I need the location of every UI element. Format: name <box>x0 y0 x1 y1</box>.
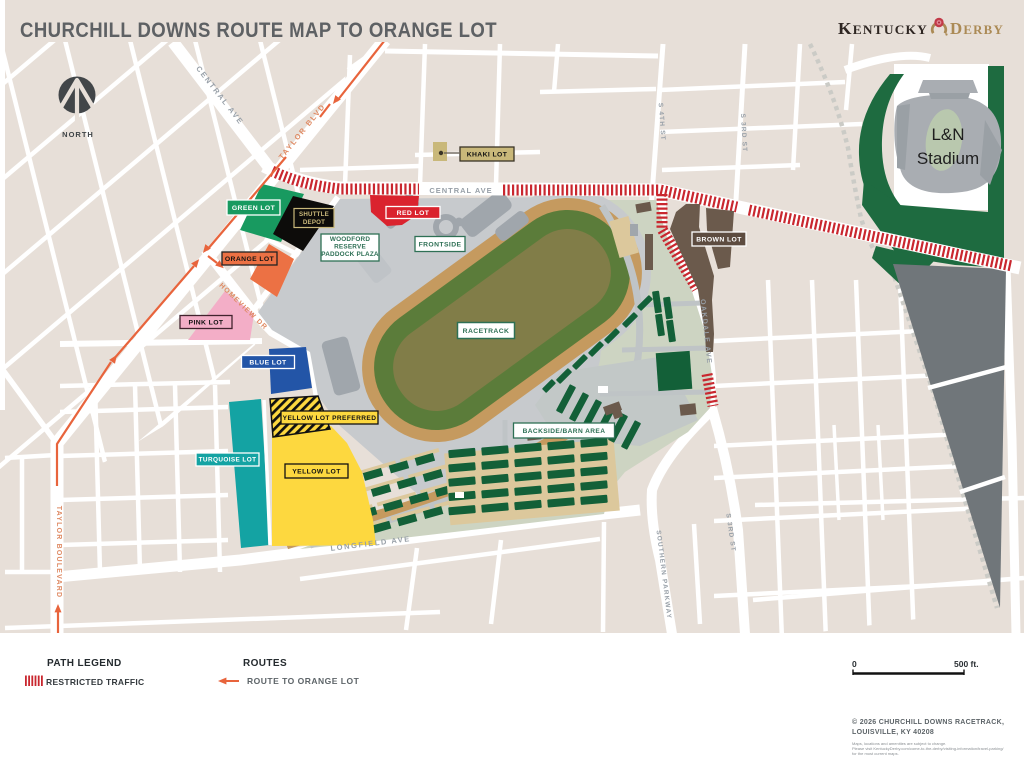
svg-text:KHAKI LOT: KHAKI LOT <box>467 151 508 158</box>
svg-text:L&N: L&N <box>931 125 964 144</box>
svg-text:WOODFORD: WOODFORD <box>330 236 370 243</box>
svg-text:500 ft.: 500 ft. <box>954 659 979 669</box>
svg-text:NORTH: NORTH <box>62 130 94 139</box>
svg-text:RESTRICTED TRAFFIC: RESTRICTED TRAFFIC <box>46 677 144 687</box>
svg-text:LOUISVILLE, KY 40208: LOUISVILLE, KY 40208 <box>852 729 934 736</box>
svg-text:KENTUCKY: KENTUCKY <box>838 19 928 38</box>
svg-text:BACKSIDE/BARN AREA: BACKSIDE/BARN AREA <box>523 428 606 435</box>
svg-text:YELLOW LOT: YELLOW LOT <box>292 468 341 475</box>
svg-text:TAYLOR BOULEVARD: TAYLOR BOULEVARD <box>55 506 62 599</box>
svg-text:0: 0 <box>852 659 857 669</box>
svg-text:RED LOT: RED LOT <box>397 210 430 217</box>
svg-text:YELLOW LOT PREFERRED: YELLOW LOT PREFERRED <box>283 415 377 422</box>
svg-text:SHUTTLE: SHUTTLE <box>299 211 329 218</box>
svg-text:ROUTES: ROUTES <box>243 658 287 669</box>
svg-text:GREEN LOT: GREEN LOT <box>232 205 276 212</box>
svg-text:DERBY: DERBY <box>950 19 1004 38</box>
svg-text:Stadium: Stadium <box>917 149 979 168</box>
svg-text:CENTRAL AVE: CENTRAL AVE <box>429 186 492 195</box>
svg-text:ROUTE TO ORANGE LOT: ROUTE TO ORANGE LOT <box>247 676 360 686</box>
svg-text:CHURCHILL DOWNS ROUTE MAP TO O: CHURCHILL DOWNS ROUTE MAP TO ORANGE LOT <box>20 19 497 42</box>
svg-text:DEPOT: DEPOT <box>303 219 325 226</box>
svg-text:ORANGE LOT: ORANGE LOT <box>225 256 275 263</box>
svg-text:RESERVE: RESERVE <box>334 244 366 251</box>
svg-text:PINK LOT: PINK LOT <box>189 319 224 326</box>
svg-text:RACETRACK: RACETRACK <box>463 328 510 335</box>
svg-text:BROWN LOT: BROWN LOT <box>696 236 742 243</box>
svg-text:FRONTSIDE: FRONTSIDE <box>419 241 462 248</box>
svg-text:BLUE LOT: BLUE LOT <box>249 359 287 366</box>
svg-text:PADDOCK PLAZA: PADDOCK PLAZA <box>321 251 379 258</box>
svg-text:for the most current maps.: for the most current maps. <box>852 751 899 756</box>
svg-text:© 2026 CHURCHILL DOWNS RACETRA: © 2026 CHURCHILL DOWNS RACETRACK, <box>852 718 1004 726</box>
svg-text:TURQUOISE LOT: TURQUOISE LOT <box>199 457 257 464</box>
svg-text:PATH LEGEND: PATH LEGEND <box>47 658 122 669</box>
